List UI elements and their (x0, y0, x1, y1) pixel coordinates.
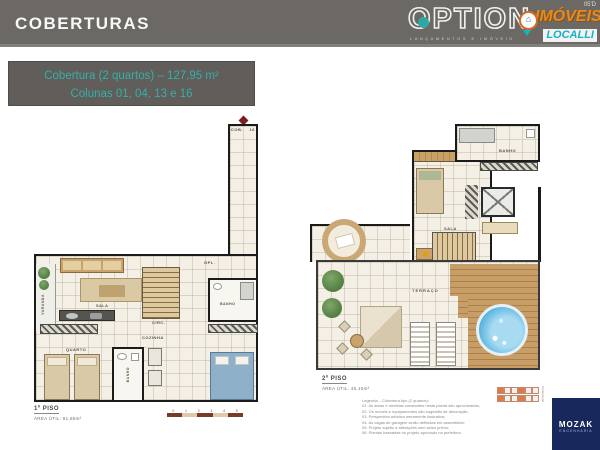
bed-pillow (235, 356, 249, 365)
scale-segment (197, 413, 212, 417)
burner-icon (423, 252, 428, 257)
lounge-chair (436, 322, 456, 366)
shower-icon (240, 282, 254, 300)
scale-segment (213, 413, 228, 417)
double-bed (210, 352, 254, 400)
corridor-label: COB. (231, 127, 243, 132)
toilet-icon (117, 353, 127, 360)
imoveis-logo-line1: IMÓVEIS (535, 9, 597, 25)
plan1-stairs (142, 267, 180, 319)
single-bed (74, 354, 100, 400)
gpl-label: GPL. (204, 260, 215, 265)
daybed-cushion (335, 233, 355, 249)
page-title: COBERTURAS (15, 0, 150, 47)
disclaimer-block: Legenda – Cobertura tipo (2 quartos):01.… (362, 398, 480, 436)
cooktop-icon (90, 313, 102, 319)
fridge (148, 348, 162, 366)
circ-label: CIRC. (152, 320, 165, 325)
key-plan: implantação (497, 386, 549, 410)
key-unit (525, 387, 532, 394)
plan1-title: 1º PISO (34, 406, 59, 414)
tree-icon (322, 270, 344, 292)
scale-segment (167, 413, 182, 417)
single-bed (44, 354, 70, 400)
key-unit-highlight (518, 395, 525, 402)
sofa-cushion (103, 261, 121, 270)
sink-icon (526, 129, 535, 138)
chair-icon (336, 342, 349, 355)
option-logo-dot-icon (418, 17, 429, 28)
key-unit (504, 395, 511, 402)
quarto-label: QUARTO (66, 347, 86, 352)
plan2-banho-label: BANHO (499, 148, 516, 153)
header-bar: COBERTURAS 05'D OPTION LANÇAMENTOS E IMÓ… (0, 0, 600, 47)
sideboard (414, 152, 458, 162)
list-line: 01. As áreas e medidas constantes nesta … (362, 403, 480, 408)
banho-suite-label: BANHO (220, 302, 235, 306)
wall-segment (538, 187, 541, 262)
shaft-wall (465, 185, 478, 219)
cozinha-label: COZINHA (142, 335, 164, 340)
key-unit-highlight (497, 395, 504, 402)
unit-info-box: Cobertura (2 quartos) – 127,95 m² Coluna… (8, 61, 255, 106)
plant-icon (38, 267, 50, 279)
kitchen-counter (59, 310, 115, 321)
unit-info-line1: Cobertura (2 quartos) – 127,95 m² (9, 68, 254, 86)
suite-closet (208, 324, 258, 333)
key-unit (525, 395, 532, 402)
stove (148, 370, 162, 386)
bench (482, 222, 518, 234)
banho-label: BANHO (126, 367, 130, 382)
wood-deck-step (450, 264, 468, 296)
toilet-icon (213, 283, 222, 290)
tree-icon (322, 298, 342, 318)
imoveis-logo-line2: LOCALLI (543, 29, 597, 42)
plan1-bathroom: BANHO (112, 347, 144, 402)
elevator-shaft (481, 187, 515, 217)
lounge-chair (410, 322, 430, 366)
scale-segment (182, 413, 197, 417)
sala-label-plan2: SALA (444, 226, 457, 231)
bed-pillow (77, 357, 97, 366)
single-bed (416, 168, 444, 214)
wood-deck-step (458, 296, 468, 318)
list-line: 06. Plantas baseadas no projeto aprovado… (362, 430, 480, 435)
plan1-area: ÁREA ÚTIL: 81,85m² (34, 416, 81, 421)
wardrobe (40, 324, 98, 334)
key-unit (511, 395, 518, 402)
chair-icon (360, 348, 373, 361)
sofa (60, 258, 124, 273)
key-plan-caption: implantação (541, 386, 545, 402)
pergola (360, 306, 402, 348)
house-icon: ⌂ (519, 11, 538, 30)
plan2-area: ÁREA ÚTIL: 46,10m² (322, 386, 369, 391)
scale-segment (228, 413, 243, 417)
mozak-logo: MOZAK ENGENHARIA (552, 398, 600, 450)
option-logo-tagline: LANÇAMENTOS E IMÓVEIS (410, 36, 514, 41)
pool (476, 304, 528, 356)
bed-pillow (215, 356, 229, 365)
plan2-terrace: TERRAÇO (316, 260, 540, 370)
key-unit (504, 387, 511, 394)
plan2-closet (480, 162, 538, 171)
key-unit (532, 387, 539, 394)
plan1-main-block: VARANDA SALA GPL. CIRC. COZINHA QUARTO (34, 254, 258, 402)
unit-info-line2: Colunas 01, 04, 13 e 16 (9, 86, 254, 104)
key-unit-highlight (497, 387, 504, 394)
plan1-corridor: COB. 16 (228, 124, 258, 258)
plan2-title: 2º PISO (322, 376, 347, 384)
key-unit (511, 387, 518, 394)
imoveis-localli-logo: ⌂ IMÓVEIS LOCALLI (535, 9, 597, 43)
chair-icon (338, 320, 351, 333)
pin-tip-icon (523, 30, 531, 36)
plan1-suite-bathroom: BANHO (208, 278, 258, 322)
key-unit-highlight (518, 387, 525, 394)
sink-icon (66, 313, 78, 319)
bed-pillow (47, 357, 67, 366)
key-unit (532, 395, 539, 402)
sink-icon (131, 353, 139, 361)
sofa-cushion (63, 261, 81, 270)
corridor-number: 16 (250, 127, 255, 132)
mozak-logo-sub: ENGENHARIA (552, 429, 600, 433)
round-table (350, 334, 364, 348)
plan1-varanda: VARANDA (36, 264, 56, 332)
living-table (80, 278, 142, 302)
varanda-label: VARANDA (41, 294, 45, 315)
house-pin-icon: ⌂ (519, 11, 538, 36)
scale-bar: 012345 (167, 409, 243, 417)
sofa-cushion (83, 261, 101, 270)
plan2-bathroom: BANHO (455, 124, 540, 162)
round-daybed (322, 219, 366, 263)
table-top (99, 285, 125, 297)
plant-icon (39, 280, 49, 290)
scale-bar-segments (167, 413, 243, 417)
bed-pillow (419, 171, 441, 180)
tub-icon (459, 128, 495, 143)
terraco-label: TERRAÇO (412, 288, 439, 293)
slide-canvas: COBERTURAS 05'D OPTION LANÇAMENTOS E IMÓ… (0, 0, 600, 450)
sala-label-plan1: SALA (96, 304, 108, 308)
mozak-logo-name: MOZAK (552, 420, 600, 429)
